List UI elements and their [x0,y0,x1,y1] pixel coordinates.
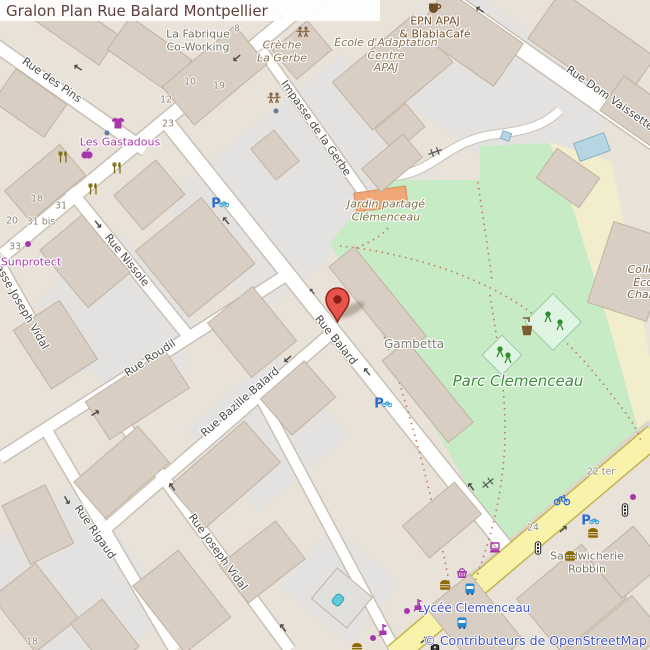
traffic-light-icon [535,541,542,555]
bicycle-parking-icon: P [581,518,599,525]
restaurant-icon [88,183,99,195]
bus-stop-icon [465,583,475,595]
area-label-line: Jardin partagé [347,198,425,211]
school-icon [378,624,389,637]
housenumber: 18 [31,194,43,205]
school-icon [413,599,424,612]
poi-dot-icon [25,241,31,247]
housenumber: 31 [55,201,67,212]
greengrocer-icon [81,148,93,160]
poi-label-ecole-adaptation: École d'Adaptation Centre APAJ [334,37,437,75]
building [133,550,231,650]
housenumber: 10 [184,77,196,88]
housenumber: 33 [9,242,21,253]
computer-shop-icon [488,542,502,554]
bus-stop-icon [457,617,467,629]
water-feature-icon [333,594,344,607]
housenumber: 12 [160,95,172,106]
poi-dot-icon [274,109,279,114]
poi-label-line: Crèche [257,39,307,52]
osm-attribution-link[interactable]: © Contributeurs de OpenStreetMap [423,633,647,648]
map-title-banner: Gralon Plan Rue Balard Montpellier [0,0,380,21]
cafe-icon [427,1,443,14]
poi-label-les-gastadous: Les Gastadous [80,136,160,149]
map-canvas[interactable]: Rue des Pins Rue Nissole Rue Roudil Rue … [0,0,650,650]
clothes-shop-icon [111,117,126,129]
bicycle-parking-icon: P [211,201,229,208]
area-label-parc-clemenceau: Parc Clemenceau [453,372,584,390]
poi-label-epn-blablacafe: EPN APAJ & BlablaCafé [399,15,470,40]
bicycle-parking-icon: P [374,401,392,408]
fast-food-icon [439,580,452,591]
poi-label-sunprotect: Sunprotect [1,256,61,269]
poi-label-line: APAJ [334,62,437,75]
poi-dot-icon [404,608,410,614]
poi-label-sandwicherie-robbin: Sandwicherie Robbin [550,550,624,575]
page-title: Gralon Plan Rue Balard Montpellier [6,2,268,20]
housenumber: 23 [162,119,174,130]
poi-dot-icon [105,131,110,136]
housenumber: 18 [26,637,38,648]
housenumber: 31 bis [27,217,56,228]
fast-food-icon [351,643,364,650]
bicycle-icon [554,495,570,506]
poi-label-creche: Crèche La Gerbe [257,39,307,64]
restaurant-icon [112,162,123,174]
poi-label-line: Co-Working [166,41,230,54]
poi-label-line: Sandwicherie [550,550,624,563]
housenumber: 24 [527,523,539,534]
area-label-line: Clémenceau [347,211,425,224]
housenumber: 20 [6,216,18,227]
traffic-light-icon [622,503,629,517]
housenumber: 8 [234,24,240,35]
kindergarten-icon [295,26,311,38]
poi-dot-icon [630,494,636,500]
supermarket-icon [456,568,469,579]
area-label-jardin-partage: Jardin partagé Clémenceau [347,198,425,223]
poi-label-lycee-clemenceau: Lycée Clemenceau [418,601,531,615]
fast-food-icon [564,551,577,562]
poi-label-line: EPN APAJ [399,15,470,28]
poi-label-college: Collège École Charles [627,264,650,302]
poi-label-line: La Fabrique [166,28,230,41]
poi-label-line: Collège [627,264,650,277]
poi-label-la-fabrique: La Fabrique Co-Working [166,28,230,53]
poi-label-line: & BlablaCafé [399,28,470,41]
housenumber: 22 ter [587,467,616,478]
poi-label-line: Robbin [550,563,624,576]
fast-food-icon [587,528,600,539]
kindergarten-icon [266,92,282,104]
poi-label-gambetta: Gambetta [384,337,444,351]
poi-label-line: Charles [627,289,650,302]
location-marker-icon[interactable] [324,287,351,323]
restaurant-icon [58,151,69,163]
poi-label-line: La Gerbe [257,52,307,65]
housenumber: 19 [213,81,225,92]
poi-dot-icon [370,635,376,641]
